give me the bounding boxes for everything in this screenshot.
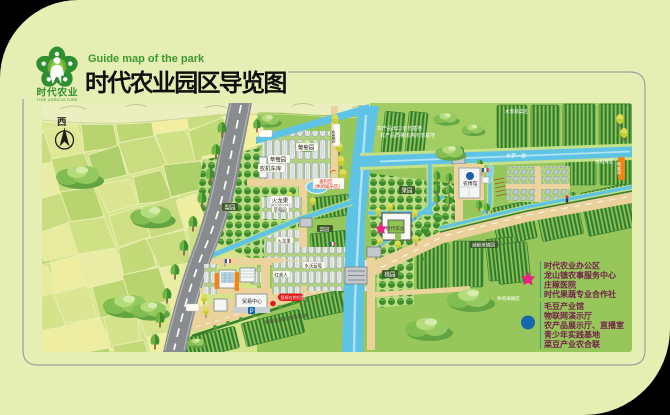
- svg-text:时代农业办公区: 时代农业办公区: [544, 260, 600, 270]
- svg-text:农博馆: 农博馆: [463, 180, 478, 187]
- svg-text:葡萄园: 葡萄园: [298, 144, 315, 152]
- svg-text:草莓园: 草莓园: [270, 156, 287, 164]
- svg-text:龙山镇农事服务中心: 龙山镇农事服务中心: [543, 270, 616, 280]
- svg-text:火龙果: 火龙果: [278, 238, 292, 245]
- svg-text:草莓园: 草莓园: [274, 207, 288, 214]
- svg-text:(休闲娱乐区): (休闲娱乐区): [315, 183, 341, 190]
- svg-text:农机车库: 农机车库: [260, 165, 283, 173]
- svg-text:梨园: 梨园: [225, 204, 237, 212]
- svg-text:农产品质量追溯示范基地: 农产品质量追溯示范基地: [380, 132, 435, 139]
- svg-text:TIME AGRICULTURE: TIME AGRICULTURE: [37, 98, 79, 102]
- svg-text:您所在的位置: 您所在的位置: [281, 294, 306, 300]
- svg-text:果园: 果园: [402, 188, 414, 195]
- svg-text:西: 西: [57, 117, 67, 128]
- svg-text:水景莲: 水景莲: [331, 129, 337, 145]
- svg-text:水景蔬菜区: 水景蔬菜区: [505, 108, 528, 115]
- svg-text:时代果蔬专业合作社: 时代果蔬专业合作社: [544, 289, 616, 299]
- svg-text:桃园: 桃园: [385, 271, 397, 279]
- svg-text:物联网: 物联网: [616, 161, 622, 176]
- svg-text:水稻育区: 水稻育区: [595, 158, 614, 165]
- svg-text:休闲采摘区: 休闲采摘区: [497, 295, 520, 302]
- svg-text:菜豆产业农合联: 菜豆产业农合联: [543, 339, 600, 349]
- svg-text:火龙果: 火龙果: [272, 197, 289, 205]
- svg-text:P: P: [250, 309, 254, 315]
- svg-text:时代农业: 时代农业: [37, 86, 78, 99]
- svg-text:农产品出口示范基地: 农产品出口示范基地: [377, 125, 422, 132]
- svg-text:时代农业: 时代农业: [386, 225, 405, 232]
- svg-text:菜园: 菜园: [320, 226, 330, 233]
- svg-text:贸易中心: 贸易中心: [242, 298, 262, 305]
- svg-text:水梦一渠: 水梦一渠: [506, 153, 526, 160]
- svg-text:青少年实践基地: 青少年实践基地: [544, 330, 600, 340]
- svg-text:诚毅采摘园: 诚毅采摘园: [472, 242, 495, 249]
- svg-text:农产品展示厅、直播室: 农产品展示厅、直播室: [543, 320, 624, 330]
- svg-text:物联网演示厅: 物联网演示厅: [544, 310, 592, 320]
- svg-text:水沃蓝莓: 水沃蓝莓: [305, 263, 323, 270]
- svg-text:庄稼医院: 庄稼医院: [544, 280, 576, 290]
- svg-text:红美人: 红美人: [275, 272, 289, 279]
- svg-text:毛豆产业馆: 毛豆产业馆: [544, 301, 584, 311]
